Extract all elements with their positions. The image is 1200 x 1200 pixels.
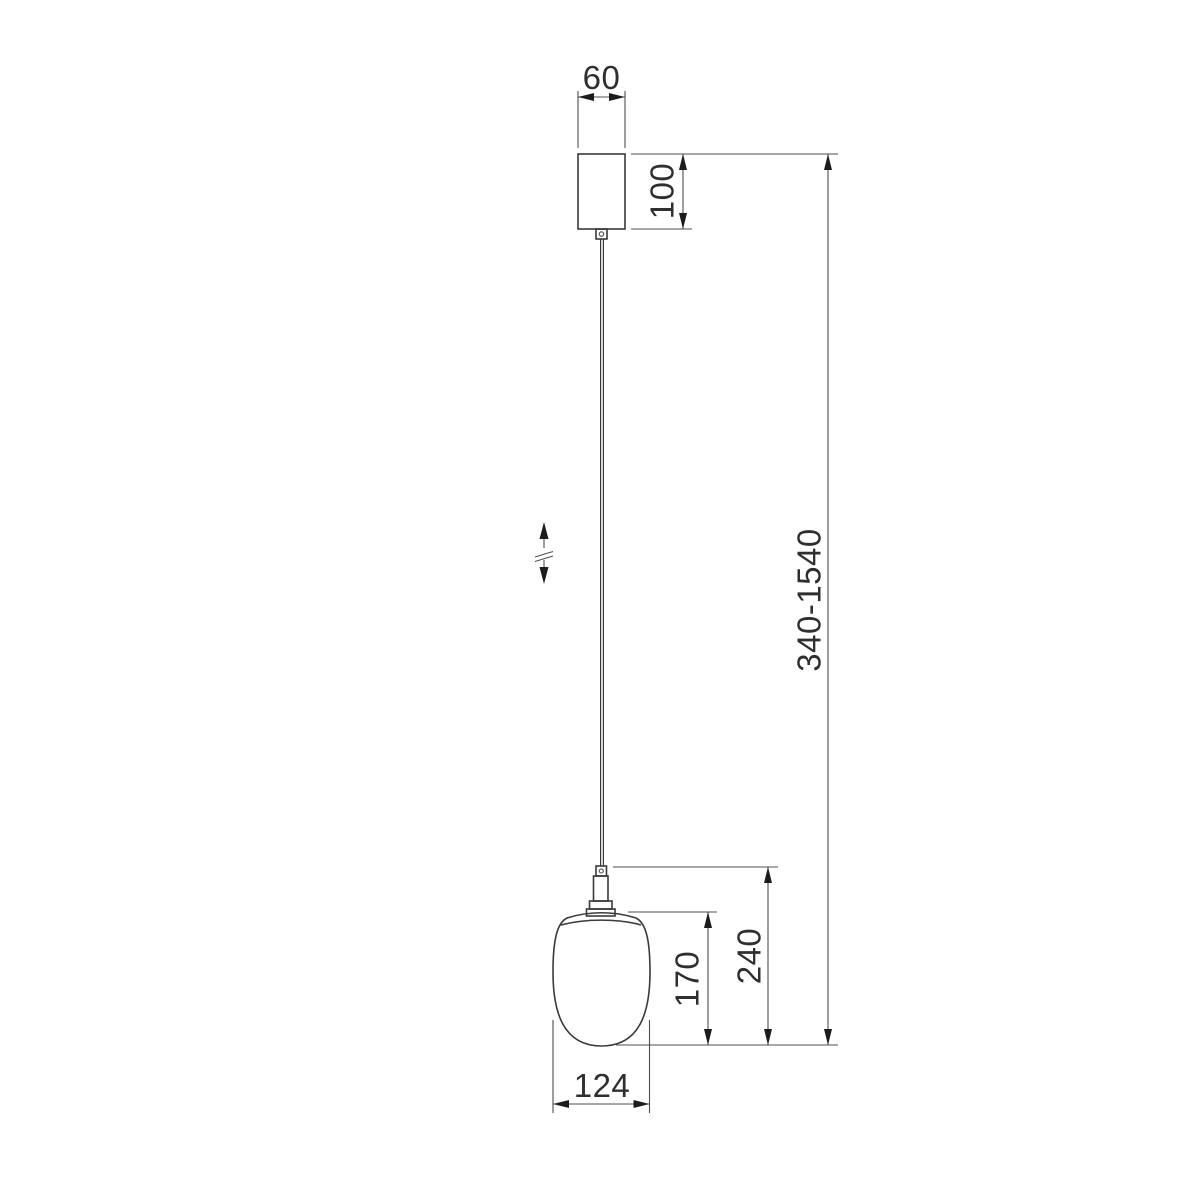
dim-canopy-height: 100 bbox=[631, 154, 838, 229]
dim-label-canopy-height: 100 bbox=[644, 163, 681, 220]
suspension-cord bbox=[601, 239, 604, 866]
dim-overall-height: 340-1540 bbox=[791, 154, 833, 1045]
dim-label-shade-height: 170 bbox=[669, 951, 706, 1008]
drawing-canvas: 60 100 340-1540 240 bbox=[0, 0, 1200, 1200]
dim-label-overall-height: 340-1540 bbox=[791, 528, 828, 671]
lamp-socket bbox=[587, 876, 616, 916]
dim-label-canopy-width: 60 bbox=[583, 59, 621, 96]
glass-shade bbox=[553, 913, 650, 1046]
shade-rim-line bbox=[561, 920, 641, 925]
dim-shade-height: 170 bbox=[628, 912, 717, 1045]
dim-canopy-width: 60 bbox=[578, 59, 625, 148]
socket-cord-grip bbox=[596, 866, 607, 876]
pendant-lamp-dimension-drawing: 60 100 340-1540 240 bbox=[0, 0, 1200, 1200]
dim-label-body-height: 240 bbox=[731, 928, 768, 985]
dim-shade-width: 124 bbox=[553, 1020, 650, 1113]
ceiling-canopy bbox=[578, 154, 625, 229]
dim-label-shade-width: 124 bbox=[574, 1067, 631, 1104]
height-adjustable-icon bbox=[535, 522, 553, 584]
canopy-cord-grip bbox=[596, 229, 607, 239]
